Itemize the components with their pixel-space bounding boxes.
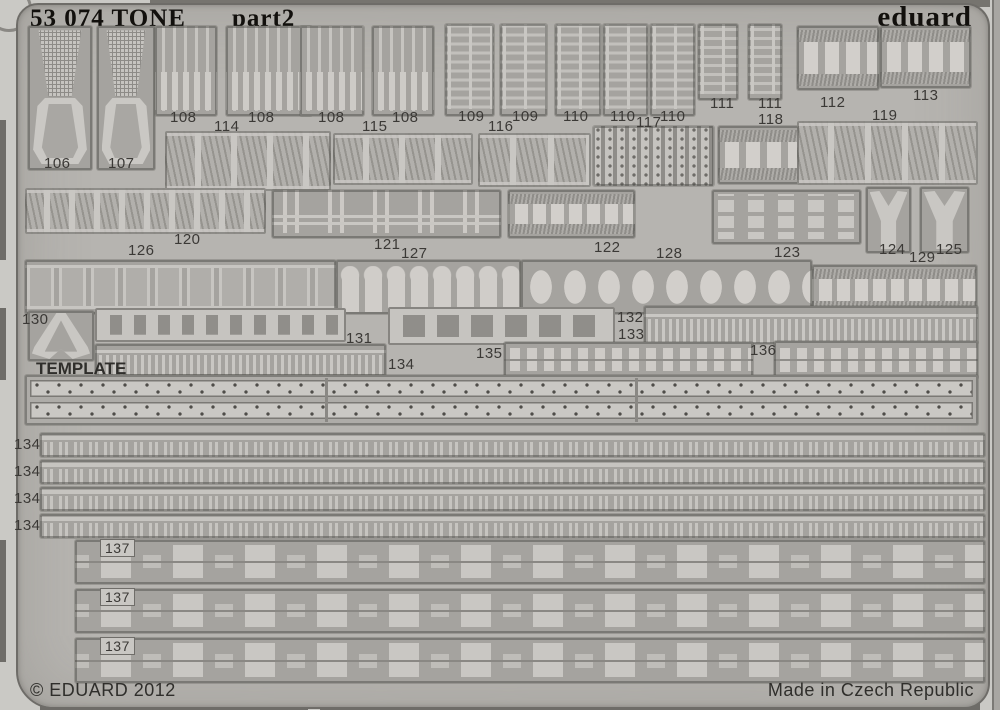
part-group-109-a — [445, 24, 494, 116]
part-label-124: 124 — [879, 241, 906, 258]
part-label-110-a: 110 — [563, 108, 588, 125]
part-group-107-catapult — [97, 26, 155, 170]
catapult-mesh — [36, 30, 85, 96]
part-group-135 — [504, 342, 753, 378]
part-group-113 — [880, 26, 971, 88]
part-group-111-b — [748, 24, 782, 100]
part-group-120 — [25, 188, 266, 234]
part-label-111-a: 111 — [710, 95, 734, 112]
part-group-111-a — [698, 24, 738, 100]
perforated-strip-top — [30, 380, 973, 397]
part-label-122: 122 — [594, 239, 621, 256]
part-group-108-a — [155, 26, 217, 116]
part-label-121: 121 — [374, 236, 401, 253]
background-left-mark-3 — [0, 540, 6, 662]
part-label-108-b: 108 — [248, 109, 275, 126]
background-left-mark-1 — [0, 120, 6, 260]
part-group-134-row4 — [40, 514, 985, 538]
part-label-108-c: 108 — [318, 109, 345, 126]
part-group-133 — [644, 306, 978, 344]
part-group-134-row3 — [40, 487, 985, 511]
part-label-106: 106 — [44, 155, 71, 172]
part-label-126: 126 — [128, 242, 155, 259]
part-label-117: 117 — [636, 114, 661, 131]
part-label-136: 136 — [750, 342, 777, 359]
template-label: TEMPLATE — [36, 359, 126, 379]
part-group-122 — [508, 190, 635, 238]
part-group-112 — [797, 26, 879, 90]
part-label-134-row4: 134 — [14, 517, 41, 534]
part-label-128: 128 — [656, 245, 683, 262]
part-label-137-row3: 137 — [100, 637, 135, 655]
part-label-131: 131 — [346, 330, 373, 347]
part-group-137-row3 — [75, 638, 985, 683]
part-group-108-d — [372, 26, 434, 116]
part-group-134-mid — [95, 344, 386, 376]
strip-divider — [325, 378, 328, 422]
part-label-112: 112 — [820, 94, 845, 111]
part-group-127 — [336, 260, 521, 314]
strip-divider — [635, 378, 638, 422]
part-label-125: 125 — [936, 241, 963, 258]
part-group-109-b — [500, 24, 547, 116]
part-label-137-row1: 137 — [100, 539, 135, 557]
part-group-137-row1 — [75, 540, 985, 584]
part-label-108-a: 108 — [170, 109, 197, 126]
part-label-108-d: 108 — [392, 109, 419, 126]
part-label-123: 123 — [774, 244, 801, 261]
part-group-119 — [797, 121, 978, 185]
part-group-136 — [774, 341, 978, 379]
background-right-edge — [992, 0, 1000, 710]
part-label-110-b: 110 — [610, 108, 635, 125]
part-label-129: 129 — [909, 249, 936, 266]
part-label-109-a: 109 — [458, 108, 485, 125]
part-label-118: 118 — [758, 111, 783, 128]
part-label-119: 119 — [872, 107, 897, 124]
catapult-mesh — [104, 30, 148, 96]
made-in-text: Made in Czech Republic — [768, 680, 974, 701]
part-label-130: 130 — [22, 311, 49, 328]
part-group-134-row2 — [40, 460, 985, 484]
part-label-133: 133 — [618, 326, 645, 343]
part-group-108-c — [300, 26, 364, 116]
part-label-120: 120 — [174, 231, 201, 248]
part-group-110-c — [650, 24, 695, 116]
part-label-134-mid: 134 — [388, 356, 415, 373]
part-label-127: 127 — [401, 245, 428, 262]
part-group-126 — [25, 260, 336, 314]
part-group-132 — [388, 307, 615, 345]
part-label-107: 107 — [108, 155, 135, 172]
part-group-118 — [718, 126, 799, 184]
part-group-114 — [165, 131, 331, 191]
part-label-137-row2: 137 — [100, 588, 135, 606]
part-group-123 — [712, 190, 861, 244]
perforated-strip-bottom — [30, 402, 973, 419]
part-label-134-row1: 134 — [14, 436, 41, 453]
part-group-117 — [593, 126, 714, 186]
part-group-115 — [333, 133, 473, 185]
background-left-mark-2 — [0, 308, 6, 380]
part-group-131 — [95, 308, 346, 342]
part-label-116: 116 — [488, 118, 513, 135]
part-group-121 — [272, 190, 501, 238]
part-label-134-row3: 134 — [14, 490, 41, 507]
part-group-perforated-strips — [25, 375, 978, 425]
part-label-135: 135 — [476, 345, 503, 362]
part-group-116 — [478, 133, 591, 187]
part-label-113: 113 — [913, 87, 938, 104]
part-group-106-catapult — [28, 26, 92, 170]
part-label-132: 132 — [617, 309, 644, 326]
part-label-111-b: 111 — [758, 95, 782, 112]
copyright-text: © EDUARD 2012 — [30, 680, 176, 701]
part-group-110-a — [555, 24, 601, 116]
part-label-114: 114 — [214, 118, 239, 135]
part-group-134-row1 — [40, 433, 985, 457]
photoetch-sheet-photo: 53 074 TONE part2 eduard — [0, 0, 1000, 710]
part-group-137-row2 — [75, 589, 985, 633]
part-label-115: 115 — [362, 118, 387, 135]
part-label-109-b: 109 — [512, 108, 539, 125]
part-label-134-row2: 134 — [14, 463, 41, 480]
part-label-110-c: 110 — [660, 108, 685, 125]
part-group-110-b — [603, 24, 648, 116]
